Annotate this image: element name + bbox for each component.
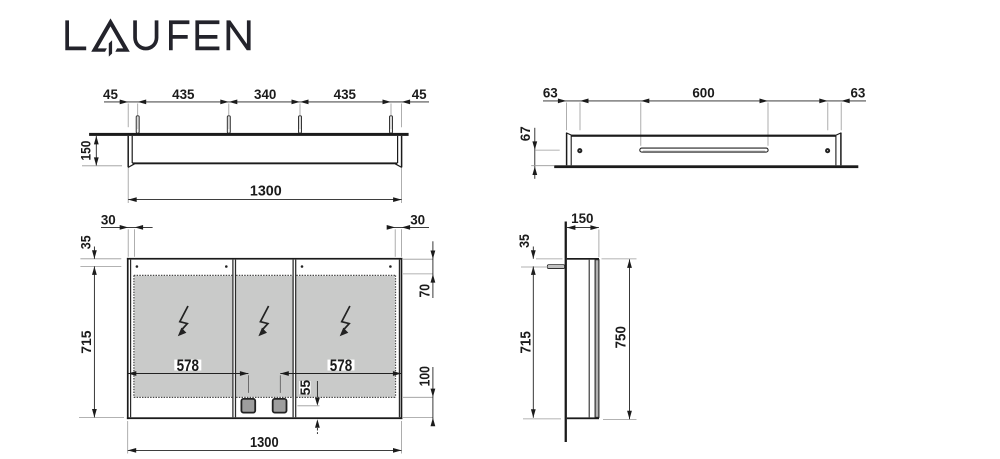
svg-text:600: 600 [692,85,714,100]
svg-text:35: 35 [79,235,94,249]
svg-text:70: 70 [418,284,434,298]
svg-text:715: 715 [78,330,94,354]
svg-text:578: 578 [330,357,352,375]
svg-text:63: 63 [850,85,865,100]
svg-text:30: 30 [101,212,116,227]
svg-text:67: 67 [518,126,533,141]
svg-text:340: 340 [254,87,276,102]
svg-text:1300: 1300 [250,435,279,451]
svg-text:55: 55 [297,380,313,396]
svg-text:435: 435 [334,87,357,102]
svg-text:45: 45 [412,87,427,102]
svg-text:63: 63 [543,85,558,100]
svg-text:715: 715 [519,331,535,353]
svg-text:150: 150 [571,211,593,226]
svg-text:435: 435 [172,87,195,102]
svg-text:35: 35 [517,234,532,248]
svg-text:150: 150 [78,141,93,161]
svg-text:45: 45 [103,87,118,102]
svg-text:750: 750 [613,326,629,348]
svg-text:578: 578 [177,357,199,375]
svg-text:1300: 1300 [250,183,282,199]
svg-text:30: 30 [410,212,425,227]
svg-text:100: 100 [418,366,434,386]
